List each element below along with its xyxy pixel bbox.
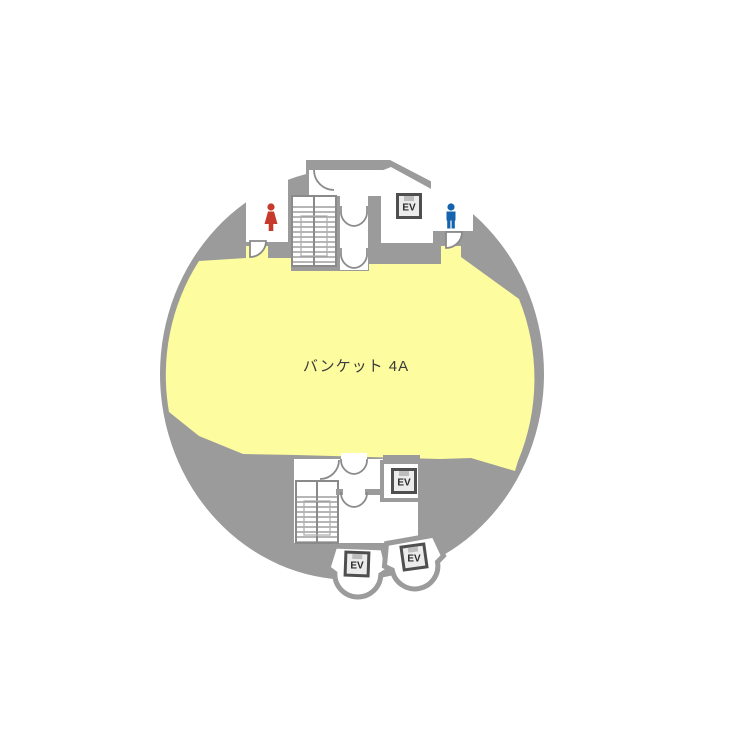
elevator-badge-north-label: EV <box>402 203 416 214</box>
elevator-badge-bay-left-label: EV <box>350 561 364 572</box>
elevator-badge-bay-left: EV <box>344 551 371 578</box>
south-back-room <box>367 500 418 543</box>
floorplan-canvas: EV EV EV EV バンケット 4A <box>0 0 740 740</box>
south-door-opening <box>341 453 367 461</box>
stairs-south <box>296 481 338 543</box>
elevator-badge-bay-right: EV <box>399 542 428 571</box>
floorplan-svg: EV EV EV EV バンケット 4A <box>0 0 740 740</box>
stairs-north <box>292 196 336 266</box>
elevator-badge-bay-right-label: EV <box>407 554 421 565</box>
north-vestibule-room <box>340 196 368 270</box>
elevator-badge-south-label: EV <box>397 478 411 489</box>
banquet-hall-label: バンケット 4A <box>303 358 409 375</box>
north-lobby-room <box>309 170 383 196</box>
elevator-badge-south: EV <box>391 468 417 494</box>
womens-restroom-room <box>246 178 288 242</box>
elevator-badge-north: EV <box>396 193 422 219</box>
